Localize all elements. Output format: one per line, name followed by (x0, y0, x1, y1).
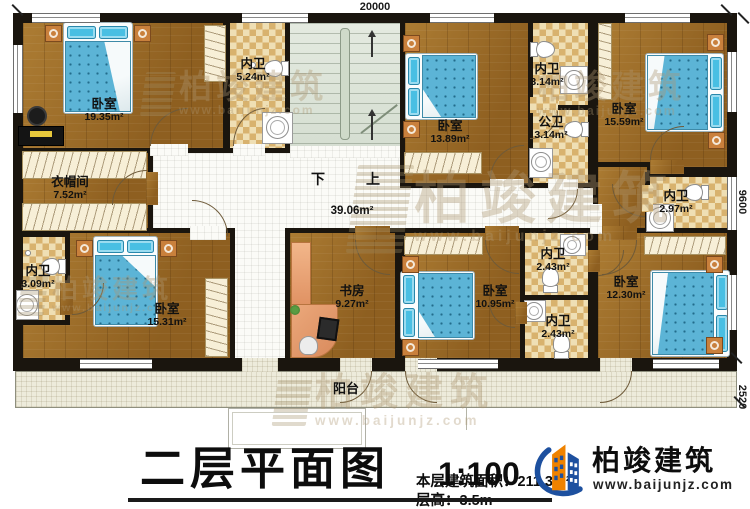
bed-botmid-pillow (403, 308, 415, 337)
room-label-bath-topleft: 内卫 5.24m² (236, 58, 269, 83)
door-opening (515, 302, 527, 324)
title-underline (128, 498, 552, 502)
room-name: 内卫 (240, 57, 265, 71)
nightstand (134, 25, 151, 42)
sink-icon (564, 70, 584, 90)
bed-botright-quilt (652, 272, 714, 355)
stair-up-label: 上 (366, 172, 380, 187)
room-label-bath-topmid: 内卫 3.14m² (530, 63, 563, 88)
sink-icon (531, 152, 551, 172)
window (430, 13, 494, 23)
bed-topleft-pillow (67, 26, 96, 39)
room-area: 10.95m² (475, 299, 514, 311)
window (727, 275, 737, 330)
door-opening (355, 226, 390, 240)
nightstand (160, 240, 177, 257)
bed-topmid-pillow (408, 57, 420, 85)
nightstand (402, 339, 419, 356)
bed-topleft-pillow (99, 26, 128, 39)
door-opening (490, 179, 524, 191)
window (653, 359, 719, 369)
bed-botleft-pillow (127, 240, 154, 253)
toilet-icon (530, 41, 555, 58)
room-name: 内卫 (534, 62, 559, 76)
terrace-outline-inner (232, 412, 362, 445)
terrace-tick (466, 408, 467, 430)
room-name: 卧室 (613, 275, 638, 289)
window (80, 359, 152, 369)
room-name: 卧室 (437, 119, 462, 133)
toilet-icon (564, 121, 589, 138)
bed-botright-sheet (653, 273, 713, 354)
balcony-door-opening (340, 358, 372, 372)
room-name: 卧室 (91, 97, 116, 111)
wardrobe-bedroom-botright (644, 236, 726, 255)
door-opening (602, 226, 637, 240)
dimension-top: 20000 (330, 1, 420, 13)
company-url: www.baijunjz.com (593, 477, 734, 492)
nightstand (706, 256, 723, 273)
nightstand (706, 337, 723, 354)
bed-topright-pillow (710, 94, 722, 128)
floor-plan-page: 柏竣建筑 www.baijunjz.com 柏竣建筑 www.baijunjz.… (0, 0, 750, 509)
room-name: 内卫 (545, 314, 570, 328)
company-name: 柏竣建筑 (592, 447, 716, 475)
room-area: 19.35m² (84, 112, 123, 124)
room-label-bath-botmid-2: 内卫 2.43m² (541, 315, 574, 340)
dimension-right-upper: 9600 (736, 171, 748, 233)
room-name: 内卫 (663, 189, 688, 203)
room-label-bedroom-topleft: 卧室 19.35m² (84, 98, 123, 123)
scale-label: 1:100 (438, 458, 520, 490)
page-title: 二层平面图 (140, 446, 390, 491)
room-name: 书房 (339, 284, 364, 298)
nightstand (76, 240, 93, 257)
door-opening (590, 204, 602, 234)
room-name: 卧室 (611, 102, 636, 116)
study-desk-vertical (291, 242, 311, 306)
room-name: 阳台 (333, 381, 359, 396)
window (625, 13, 690, 23)
room-area: 2.97m² (659, 204, 692, 216)
room-label-bath-right: 内卫 2.97m² (659, 190, 692, 215)
room-label-study: 书房 9.27m² (335, 285, 368, 310)
bed-botleft-sheet (96, 256, 155, 324)
wardrobe-bedroom-botleft (205, 278, 228, 357)
closet-bedroom-topright (598, 23, 612, 100)
room-area: 3.14m² (534, 130, 567, 142)
room-label-balcony: 阳台 (333, 382, 359, 396)
nightstand (707, 34, 724, 51)
room-name: 公卫 (538, 115, 563, 129)
study-chair (299, 336, 318, 355)
door-opening (290, 146, 400, 158)
flush-knob-icon (25, 250, 31, 256)
corridor-area-label: 39.06m² (331, 205, 374, 218)
stair-arrow-up (371, 33, 373, 57)
room-label-bath-botleft: 内卫 3.09m² (21, 265, 54, 290)
balcony-door-opening (242, 358, 278, 372)
sink-icon (16, 294, 38, 316)
room-area: 3.14m² (530, 77, 563, 89)
room-area: 5.24m² (236, 72, 269, 84)
window (418, 359, 498, 369)
nightstand (403, 35, 420, 52)
room-label-cloakroom: 衣帽间 7.52m² (51, 176, 89, 201)
room-label-bedroom-botleft: 卧室 15.31m² (147, 303, 186, 328)
corridor-area: 39.06m² (331, 205, 374, 217)
bed-botmid-sheet (419, 274, 472, 337)
nightstand (403, 121, 420, 138)
room-area: 3.09m² (21, 279, 54, 291)
room-label-bedroom-topright: 卧室 15.59m² (604, 103, 643, 128)
window (242, 13, 308, 23)
sink-icon (525, 302, 543, 320)
wardrobe-bedroom-topleft (204, 25, 226, 82)
room-label-bedroom-botmid: 卧室 10.95m² (475, 285, 514, 310)
bed-botleft-pillow (97, 240, 124, 253)
keyboard (30, 131, 52, 137)
window (32, 13, 100, 23)
door-opening (485, 226, 519, 240)
door-opening (650, 160, 684, 174)
stair-rail (340, 28, 350, 140)
bed-botmid-pillow (403, 275, 415, 304)
stair-arrow-up (371, 112, 373, 140)
room-name: 衣帽间 (51, 175, 89, 189)
room-area: 12.30m² (606, 290, 645, 302)
dimension-tick (737, 12, 749, 24)
computer-monitor (317, 317, 340, 342)
room-area: 15.31m² (147, 317, 186, 329)
room-area: 2.43m² (541, 329, 574, 341)
room-name: 卧室 (154, 302, 179, 316)
balcony-door-opening (600, 358, 632, 372)
office-chair (27, 106, 47, 126)
bed-topmid-sheet (423, 56, 475, 117)
nightstand (708, 132, 725, 149)
bed-topright-sheet (648, 56, 707, 129)
company-logo-icon (532, 440, 590, 498)
room-area: 7.52m² (51, 190, 89, 202)
room-area: 2.43m² (536, 262, 569, 274)
nightstand (402, 256, 419, 273)
cloakroom-rack-bottom (22, 203, 147, 231)
room-area: 9.27m² (335, 299, 368, 311)
room-name: 内卫 (25, 264, 50, 278)
bed-topright-quilt (647, 55, 708, 130)
bed-botmid-quilt (418, 273, 473, 338)
wardrobe-bedroom-topmid (404, 152, 482, 174)
dimension-right-lower: 2520 (736, 366, 748, 428)
room-label-bedroom-topmid: 卧室 13.89m² (430, 120, 469, 145)
window (727, 52, 737, 112)
nightstand (45, 25, 62, 42)
room-label-bath-botmid-1: 内卫 2.43m² (536, 248, 569, 273)
wardrobe-bedroom-botmid (404, 236, 483, 255)
bed-topright-pillow (710, 57, 722, 90)
window (13, 45, 23, 113)
room-label-bath-public: 公卫 3.14m² (534, 116, 567, 141)
bed-topmid-quilt (422, 55, 476, 118)
room-name: 内卫 (540, 247, 565, 261)
sink-icon (266, 116, 289, 139)
room-area: 13.89m² (430, 134, 469, 146)
room-label-bedroom-botright: 卧室 12.30m² (606, 276, 645, 301)
room-area: 15.59m² (604, 117, 643, 129)
stair-down-label: 下 (311, 172, 325, 187)
door-opening (146, 172, 158, 205)
plant-icon (290, 305, 300, 315)
bed-topmid-pillow (408, 88, 420, 116)
room-name: 卧室 (482, 284, 507, 298)
